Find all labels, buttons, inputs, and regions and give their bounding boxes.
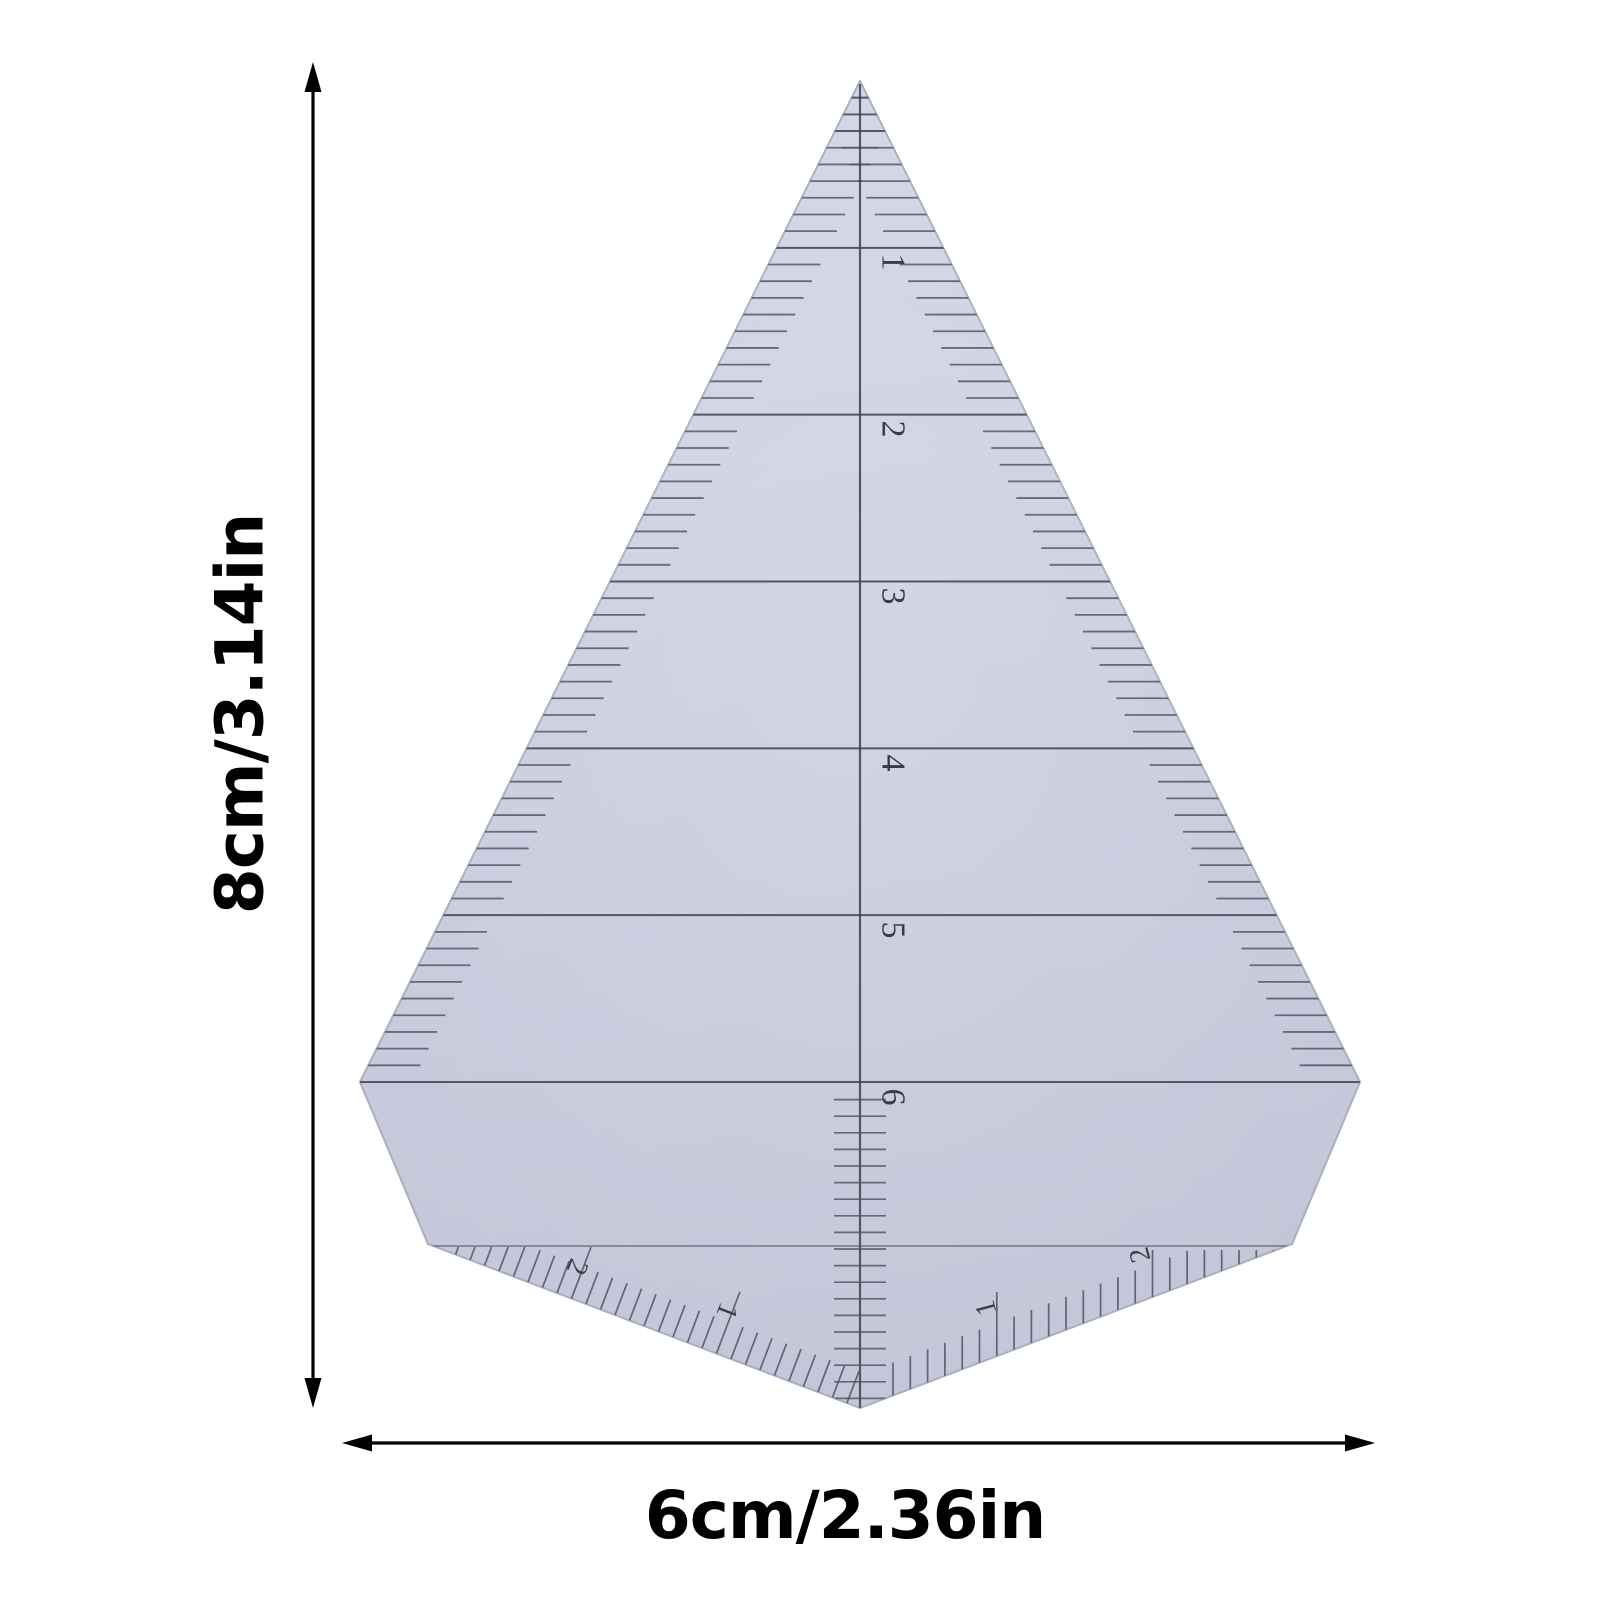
arrowhead-right-icon	[1345, 1435, 1375, 1452]
width-dimension: 6cm/2.36in	[342, 1435, 1375, 1555]
diagram-svg: 1 2 3 4 5 6 1 2 1 2 8cm/3.14in 6cm/2.36i…	[0, 0, 1600, 1600]
cm-number-1: 1	[875, 254, 912, 271]
cm-number-6: 6	[875, 1089, 912, 1106]
width-label: 6cm/2.36in	[645, 1477, 1045, 1554]
cm-number-2: 2	[875, 421, 912, 438]
arrowhead-left-icon	[342, 1435, 372, 1452]
cm-number-4: 4	[875, 755, 912, 772]
ruler-template: 1 2 3 4 5 6 1 2 1 2	[330, 81, 1390, 1408]
cm-number-3: 3	[875, 588, 912, 605]
height-label: 8cm/3.14in	[202, 514, 279, 914]
product-dimension-diagram: 1 2 3 4 5 6 1 2 1 2 8cm/3.14in 6cm/2.36i…	[0, 0, 1600, 1600]
arrowhead-down-icon	[305, 1378, 322, 1408]
arrowhead-up-icon	[305, 62, 322, 92]
cm-number-5: 5	[875, 922, 912, 939]
height-dimension: 8cm/3.14in	[202, 62, 322, 1408]
